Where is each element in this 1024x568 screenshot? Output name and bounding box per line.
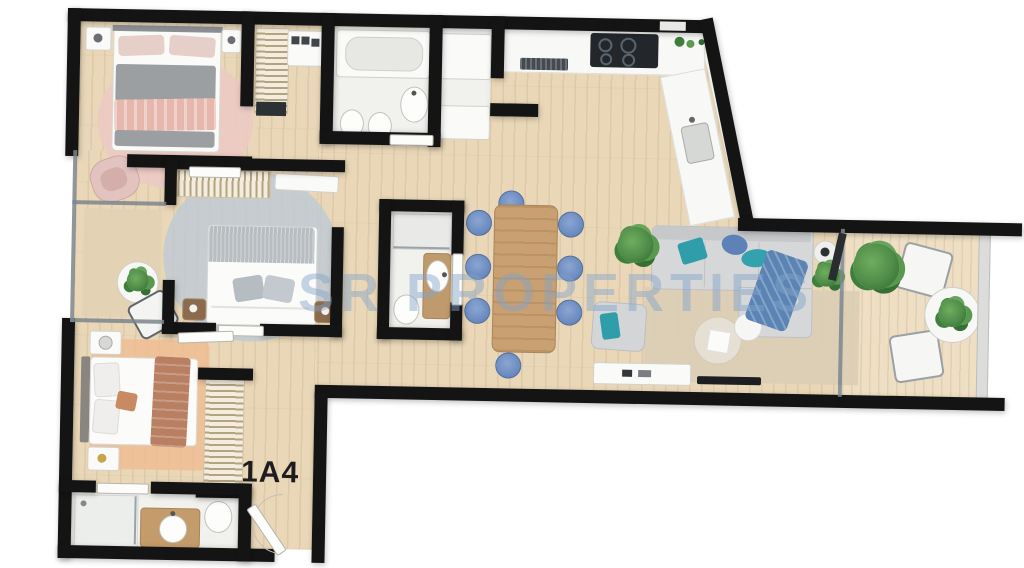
wall-wc-right-upper [451, 200, 464, 255]
lamp-icon [98, 336, 112, 350]
laundry-unit [287, 30, 324, 67]
kitchen-sink-icon [680, 122, 715, 165]
faucet [170, 511, 175, 516]
faucet [688, 116, 695, 123]
throw-pink [114, 98, 216, 132]
wall-shelf [274, 173, 339, 193]
door-bathroom-bottom [97, 483, 149, 495]
watermark-text: SR PROPERTIES [298, 262, 814, 324]
media-box [638, 370, 651, 377]
canopy-net [208, 226, 315, 264]
pillow [118, 35, 165, 57]
unit-label: 1A4 [241, 455, 300, 490]
cushion [98, 165, 130, 194]
faucet [411, 91, 416, 96]
burner [600, 53, 612, 65]
shower-glass [393, 246, 449, 249]
wall-master-left-upper [164, 157, 177, 205]
wall-pantry-stub [490, 103, 538, 117]
media-box [622, 370, 632, 377]
wall-bath2-top-right [151, 482, 249, 496]
pillow [93, 362, 121, 397]
vanity [140, 507, 201, 548]
lamp-icon [93, 33, 102, 42]
bed-double-terracotta [89, 356, 199, 446]
wall-master-bottom-right [260, 324, 342, 338]
burner [598, 38, 612, 52]
balcony-rail [976, 233, 991, 403]
throw-terracotta [150, 356, 191, 448]
vegetables [674, 37, 684, 47]
wall-bath-right [427, 15, 443, 147]
appliance-square [301, 36, 309, 44]
wall-closet-bath [319, 13, 334, 143]
door-bedroom3 [178, 331, 234, 344]
wall-bath2-corridor [237, 483, 251, 561]
shower-icon [74, 494, 139, 547]
cooktop-icon [590, 33, 659, 68]
headboard [113, 25, 223, 33]
burner [622, 54, 635, 67]
shower-glass [134, 496, 137, 544]
appliance-square [311, 39, 319, 47]
tub-basin [345, 36, 424, 71]
blanket-gray [114, 130, 214, 148]
closet-mat [256, 102, 286, 117]
window-gap [660, 21, 686, 30]
pillow [262, 274, 296, 303]
entry-closet-lower [436, 105, 491, 140]
bathtub-icon [336, 29, 431, 79]
pillow [232, 274, 265, 302]
tray [706, 329, 731, 354]
lamp-icon [227, 36, 235, 44]
entry-closet-upper [437, 33, 492, 80]
pillow [169, 35, 216, 58]
wall-corridor-right [311, 393, 327, 563]
shower-icon [392, 213, 452, 250]
door-bedroom1 [189, 166, 241, 178]
nightstand [221, 29, 241, 53]
cushion-terracotta [115, 390, 138, 412]
lamp-icon [97, 454, 106, 463]
appliance-square [291, 36, 299, 44]
bed-double-pink [111, 27, 221, 153]
wall-bath2-top-left [59, 480, 96, 493]
floor-plan-canvas: 1A4 SR PROPERTIES [0, 0, 1024, 568]
shower-head [80, 500, 86, 506]
nightstand [89, 330, 121, 355]
door-bathroom-top [389, 134, 433, 146]
wall-wardrobe-top [198, 368, 253, 381]
nightstand [182, 298, 206, 320]
wardrobe-hangers-icon [203, 377, 245, 490]
lamp-icon [820, 247, 829, 256]
tv-icon [697, 376, 761, 385]
sink-icon [159, 515, 188, 544]
duvet-fold [211, 306, 309, 310]
wall-bedroom1-closet [240, 11, 255, 106]
wall-master-left-lower [162, 280, 175, 334]
wall-pantry-right [491, 16, 505, 78]
vent-grille [520, 58, 568, 71]
kitchen-counter-top [495, 26, 706, 76]
nightstand [87, 446, 119, 471]
tv-console [593, 362, 691, 386]
lamp-icon [189, 304, 197, 312]
nightstand [85, 26, 111, 50]
burner [620, 38, 636, 54]
